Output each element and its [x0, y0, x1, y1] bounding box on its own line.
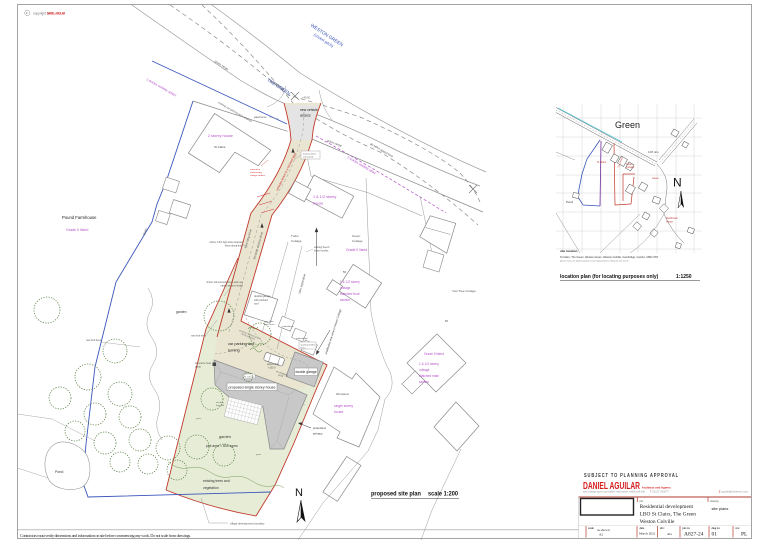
svg-text:T 01223 290077: T 01223 290077: [650, 490, 669, 494]
svg-text:FL 100.15: FL 100.15: [244, 377, 255, 379]
svg-text:native species hedge: native species hedge: [221, 284, 244, 287]
svg-text:new fruit trees: new fruit trees: [191, 335, 207, 338]
svg-text:uncovered: uncovered: [303, 156, 314, 159]
svg-text:roof: roof: [254, 302, 259, 306]
svg-text:new fruit trees: new fruit trees: [86, 339, 102, 342]
svg-text:change surface: change surface: [250, 174, 266, 177]
svg-text:Pond: Pond: [55, 470, 63, 474]
svg-text:Pound Farmhouse: Pound Farmhouse: [62, 215, 97, 220]
svg-text:washing timber: washing timber: [301, 343, 316, 346]
svg-text:fence: fence: [301, 347, 307, 349]
svg-text:fence along drive: fence along drive: [225, 244, 244, 247]
svg-text:turning: turning: [228, 349, 240, 353]
svg-text:dwg no:: dwg no:: [712, 528, 721, 530]
svg-text:privacy: privacy: [313, 432, 323, 436]
svg-text:garden: garden: [176, 310, 187, 314]
svg-text:St Clairs, The Green, Weston G: St Clairs, The Green, Weston Green, West…: [560, 255, 659, 259]
svg-text:SUBJECT TO PLANNING APPROVAL: SUBJECT TO PLANNING APPROVAL: [584, 473, 679, 479]
svg-text:proposed single storey house: proposed single storey house: [229, 385, 276, 389]
svg-text:thatched front: thatched front: [340, 292, 360, 296]
svg-text:c: c: [26, 11, 28, 15]
svg-text:+100.0: +100.0: [268, 366, 276, 369]
svg-text:protected: protected: [313, 426, 326, 430]
svg-text:Cottage: Cottage: [352, 239, 363, 243]
svg-text:Residential development: Residential development: [640, 504, 694, 510]
svg-text:existing trees and: existing trees and: [203, 479, 230, 483]
svg-text:vegetation: vegetation: [203, 486, 219, 490]
svg-text:new 1.8m: new 1.8m: [264, 321, 274, 323]
svg-text:Yew Tree Cottage: Yew Tree Cottage: [452, 289, 476, 293]
svg-text:Green: Green: [615, 120, 640, 130]
svg-text:N: N: [673, 176, 682, 190]
svg-text:new vehicle: new vehicle: [300, 108, 318, 112]
svg-text:double garage: double garage: [254, 294, 271, 298]
svg-text:Cottage: Cottage: [626, 166, 635, 169]
svg-text:car parking and: car parking and: [228, 342, 254, 346]
svg-text:Grade II listed: Grade II listed: [66, 228, 88, 232]
svg-text:plot area = 800 sqms: plot area = 800 sqms: [206, 444, 238, 448]
svg-text:Tudor: Tudor: [291, 234, 299, 238]
svg-text:1:1250: 1:1250: [676, 274, 692, 280]
svg-text:DANIEL AGUILAR: DANIEL AGUILAR: [47, 11, 65, 15]
svg-text:AG: AG: [667, 532, 672, 536]
svg-text:Grade II listed: Grade II listed: [346, 248, 367, 252]
svg-text:job no:: job no:: [682, 528, 691, 530]
svg-text:as shown: as shown: [597, 528, 610, 532]
svg-text:found surface: found surface: [303, 153, 317, 156]
svg-text:Grade II listed: Grade II listed: [424, 352, 444, 356]
svg-text:St Clairs: St Clairs: [597, 161, 607, 164]
svg-text:House: House: [666, 220, 674, 223]
svg-text:cottage: cottage: [419, 368, 430, 372]
svg-text:access: access: [300, 114, 311, 118]
svg-text:A2: A2: [599, 533, 603, 537]
svg-text:gated fence: gated fence: [254, 116, 267, 119]
svg-text:1 & 1/2 storey: 1 & 1/2 storey: [313, 195, 337, 199]
svg-text:double garage: double garage: [295, 370, 316, 374]
svg-text:Green: Green: [652, 177, 659, 180]
svg-text:garden: garden: [219, 435, 231, 439]
svg-text:job:: job:: [639, 500, 644, 503]
svg-text:date: date: [640, 527, 645, 530]
svg-text:2 storey house: 2 storey house: [208, 134, 233, 138]
svg-text:existing: existing: [216, 401, 224, 404]
svg-text:house: house: [313, 202, 323, 206]
svg-text:Weston Colville: Weston Colville: [640, 519, 675, 525]
svg-text:1 & 1/2 storey: 1 & 1/2 storey: [340, 280, 360, 284]
svg-text:LBO St Clairs, The Green: LBO St Clairs, The Green: [640, 512, 697, 518]
svg-text:village development boundary: village development boundary: [230, 522, 265, 526]
svg-text:section: section: [340, 298, 350, 302]
svg-text:site plans: site plans: [712, 506, 729, 511]
svg-text:please check site legal bounda: please check site legal boundary at land…: [560, 260, 629, 263]
svg-text:N: N: [295, 487, 303, 499]
svg-text:consent to: consent to: [250, 168, 261, 171]
svg-text:1 & 1/2 storey: 1 & 1/2 storey: [419, 362, 439, 366]
svg-text:grass: grass: [256, 453, 262, 456]
svg-text:+49.00: +49.00: [302, 96, 311, 100]
svg-text:Pond: Pond: [566, 200, 573, 204]
svg-text:Architect and Agents: Architect and Agents: [642, 486, 671, 490]
svg-text:constructing: constructing: [250, 171, 263, 174]
svg-text:drn:: drn:: [660, 528, 665, 530]
svg-text:proposed site plan: proposed site plan: [371, 491, 421, 498]
svg-text:section: section: [419, 380, 429, 384]
svg-text:Contractors must verify dimens: Contractors must verify dimensions and i…: [20, 533, 191, 538]
svg-text:outbuildings: outbuildings: [282, 325, 295, 328]
svg-text:site location: site location: [560, 249, 578, 253]
svg-text:Green: Green: [352, 234, 361, 238]
svg-text:drawing:: drawing:: [710, 500, 719, 503]
svg-text:scale 1:200: scale 1:200: [428, 491, 458, 498]
svg-text:E aguilar@btinternet.com: E aguilar@btinternet.com: [719, 490, 748, 494]
svg-text:location plan (for locating pu: location plan (for locating purposes onl…: [560, 274, 659, 280]
svg-text:cottage: cottage: [340, 286, 351, 290]
svg-text:March 2021: March 2021: [639, 532, 656, 536]
svg-text:Cottage: Cottage: [291, 239, 302, 243]
svg-text:A827-24: A827-24: [684, 532, 704, 538]
svg-text:01: 01: [712, 532, 718, 538]
svg-text:rev:: rev:: [736, 528, 740, 530]
svg-text:PL: PL: [741, 532, 748, 538]
svg-text:Woodview: Woodview: [336, 392, 350, 396]
svg-text:single storey: single storey: [334, 404, 353, 408]
svg-text:acre cottage acre road carlton: acre cottage acre road carlton newmarket…: [583, 490, 646, 494]
svg-text:pump: pump: [195, 365, 202, 368]
svg-text:scale: scale: [588, 528, 594, 530]
svg-text:outbuildings: outbuildings: [296, 337, 309, 340]
svg-text:grass: grass: [196, 417, 202, 420]
svg-text:108 obs: 108 obs: [648, 150, 659, 154]
svg-text:St Clairs: St Clairs: [214, 145, 226, 149]
svg-text:thatched main: thatched main: [419, 374, 439, 378]
svg-text:house: house: [334, 410, 343, 414]
svg-text:with pitched: with pitched: [254, 298, 268, 302]
